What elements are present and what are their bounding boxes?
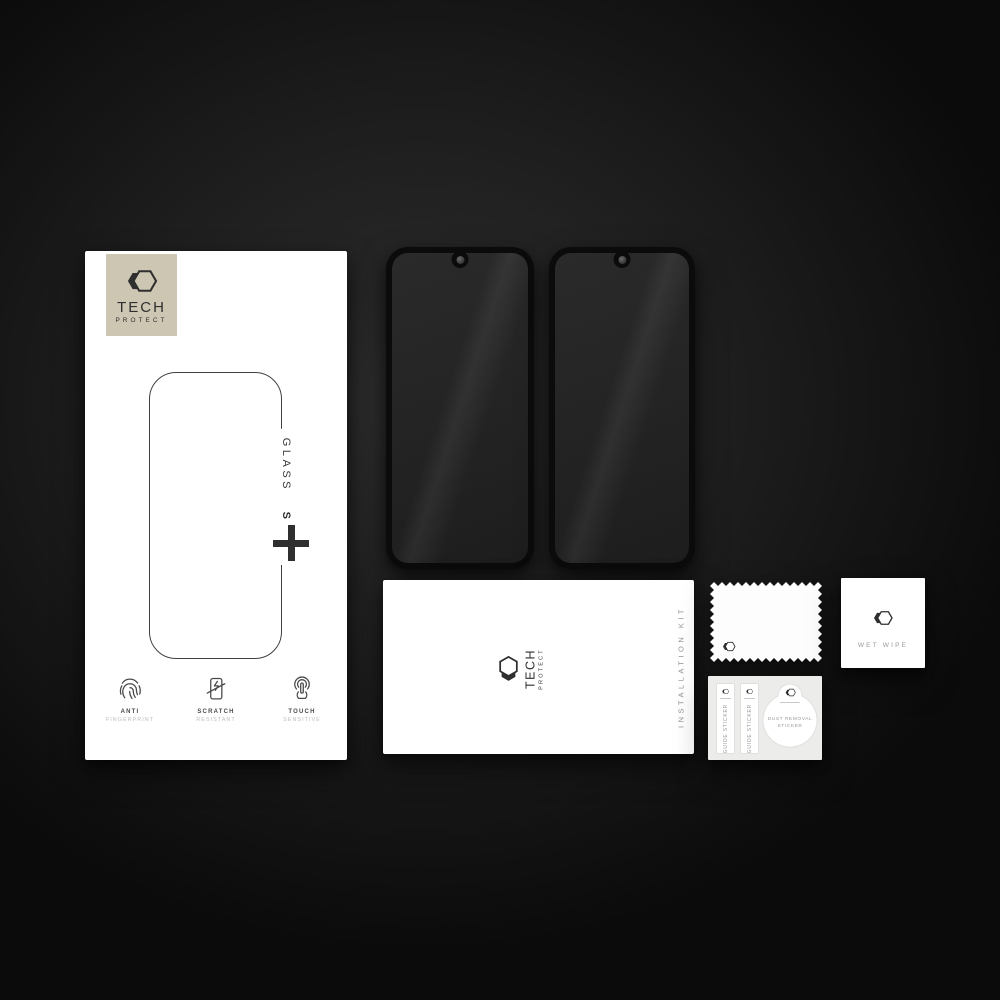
product-photo-scene: TECH PROTECT GLASS SPY <box>0 0 1000 1000</box>
guide-sticker-label: GUIDE STICKER <box>747 704 753 753</box>
dust-removal-sticker: DUST REMOVAL STICKER <box>762 683 818 753</box>
feature-label-line2: FINGERPRINT <box>106 717 154 723</box>
tech-protect-hexagon-icon <box>123 266 161 296</box>
tech-protect-hexagon-icon <box>784 687 797 698</box>
feature-icons-row: ANTI FINGERPRINT SCRATCH RESISTANT <box>85 675 347 723</box>
glass-surface <box>555 253 689 563</box>
guide-sticker-2: GUIDE STICKER <box>740 683 759 754</box>
divider <box>744 698 755 699</box>
tech-protect-hexagon-icon <box>720 688 731 695</box>
wet-wipe-label: WET WIPE <box>858 642 908 649</box>
feature-label-line1: ANTI <box>121 709 140 715</box>
feature-anti-fingerprint: ANTI FINGERPRINT <box>99 675 161 723</box>
brand-subname: PROTECT <box>539 648 545 690</box>
wet-wipe-packet: WET WIPE <box>841 578 925 668</box>
feature-label-line1: TOUCH <box>288 709 315 715</box>
brand-badge: TECH PROTECT <box>106 254 177 336</box>
installation-kit-box: TECH PROTECT INSTALLATION KIT <box>383 580 694 754</box>
camera-hole-cutout <box>452 251 469 268</box>
guide-sticker-1: GUIDE STICKER <box>716 683 735 754</box>
plus-icon <box>269 521 313 565</box>
feature-label-line1: SCRATCH <box>197 709 234 715</box>
divider <box>720 698 731 699</box>
phone-outline-drawing <box>149 372 282 659</box>
retail-box: TECH PROTECT GLASS SPY <box>85 251 347 760</box>
feature-touch-sensitive: TOUCH SENSITIVE <box>271 675 333 723</box>
tech-protect-hexagon-icon <box>744 688 755 695</box>
brand-subname: PROTECT <box>115 317 167 324</box>
feature-label-line2: RESISTANT <box>196 717 235 723</box>
touch-icon <box>288 675 316 703</box>
microfiber-cloth <box>710 582 822 662</box>
tempered-glass-2 <box>549 247 695 569</box>
guide-sticker-label: GUIDE STICKER <box>723 704 729 753</box>
camera-hole-cutout <box>614 251 631 268</box>
tempered-glass-1 <box>386 247 534 569</box>
scratch-icon <box>202 675 230 703</box>
divider <box>780 702 800 703</box>
glass-surface <box>392 253 528 563</box>
brand-name: TECH <box>117 299 166 316</box>
product-line-text: GLASS <box>280 438 292 492</box>
fingerprint-icon <box>116 675 144 703</box>
dust-sticker-label-line1: DUST REMOVAL <box>768 717 813 722</box>
tech-protect-hexagon-icon <box>496 653 522 685</box>
tech-protect-hexagon-icon <box>871 608 895 628</box>
tech-protect-hexagon-icon <box>721 640 737 653</box>
brand-name: TECH <box>524 649 538 689</box>
feature-scratch-resistant: SCRATCH RESISTANT <box>185 675 247 723</box>
dust-sticker-label-line2: STICKER <box>778 724 803 729</box>
feature-label-line2: SENSITIVE <box>283 717 321 723</box>
sticker-sheet: GUIDE STICKER GUIDE STICKER DUST REMOVAL <box>708 676 822 760</box>
